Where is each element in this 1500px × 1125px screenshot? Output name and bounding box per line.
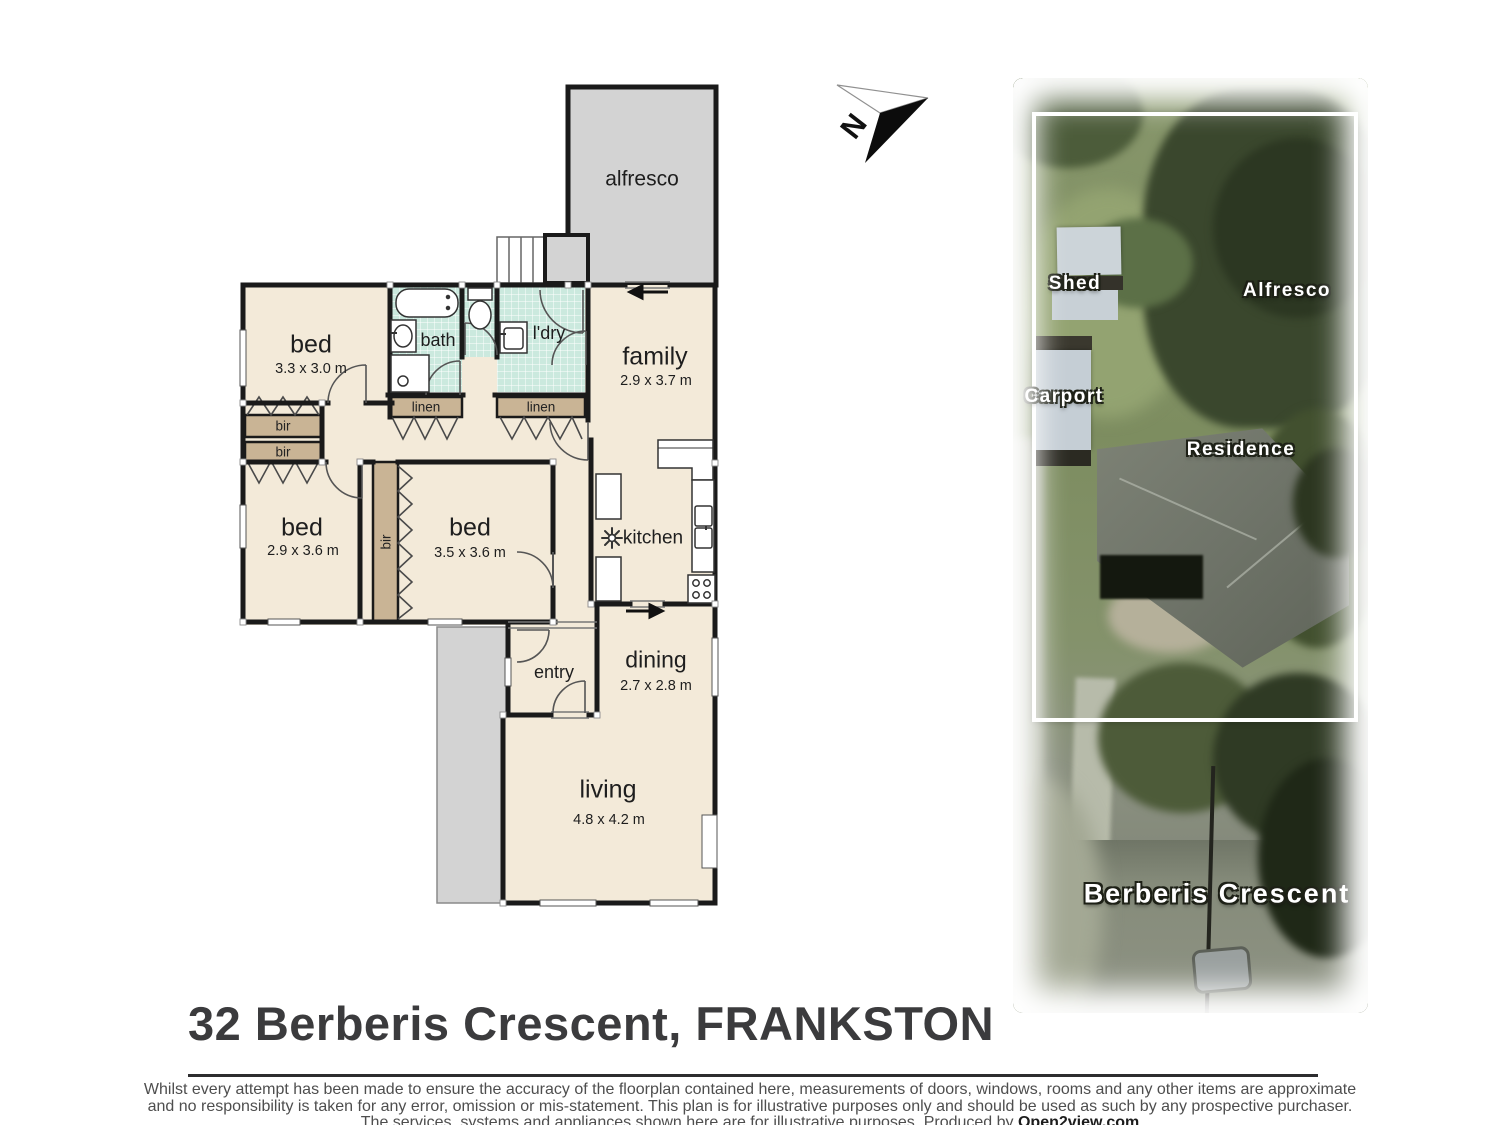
stove (688, 575, 715, 603)
room-label-bath: bath (420, 331, 455, 349)
toilet-bowl (469, 301, 491, 329)
room-label-bed2: bed (281, 516, 323, 541)
producer-brand: Open2view.com (1018, 1114, 1139, 1125)
disclaimer-line3-text: The services, systems and appliances sho… (361, 1114, 1018, 1125)
disclaimer: Whilst every attempt has been made to en… (120, 1082, 1380, 1125)
parked-car (1191, 946, 1253, 995)
closet-label-linen2: linen (527, 400, 556, 414)
room-label-family: family (622, 345, 687, 370)
room-dim-bed3: 3.5 x 3.6 m (434, 546, 506, 561)
room-label-dining: dining (625, 649, 686, 672)
side-path (437, 627, 508, 903)
title-underline (188, 1074, 1318, 1077)
aerial-label-carport: Carport (1024, 386, 1103, 408)
aerial-label-shed: Shed (1049, 273, 1101, 295)
room-dim-bed1: 3.3 x 3.0 m (275, 362, 347, 377)
page: N (0, 0, 1500, 1125)
north-arrow: N (810, 70, 950, 180)
room-label-ldry: l'dry (533, 324, 565, 342)
room-label-living: living (580, 778, 637, 803)
room-dim-living: 4.8 x 4.2 m (573, 813, 645, 828)
closet-label-bir2: bir (275, 445, 290, 459)
room-label-bed3: bed (449, 516, 491, 541)
steps (497, 235, 588, 283)
fan-icon (602, 528, 622, 548)
room-label-alfresco: alfresco (605, 169, 679, 190)
page-title: 32 Berberis Crescent, FRANKSTON (188, 996, 994, 1051)
floorplan-svg (160, 60, 760, 930)
closet-label-bir1: bir (275, 419, 290, 433)
aerial-photo: Shed Alfresco Carport Residence Berberis… (1013, 78, 1368, 1013)
north-arrow-n: N (834, 108, 873, 145)
room-label-kitchen: kitchen (623, 529, 683, 548)
toilet-tank (468, 288, 492, 300)
room-dim-dining: 2.7 x 2.8 m (620, 679, 692, 694)
property-boundary (1032, 112, 1358, 722)
disclaimer-line: and no responsibility is taken for any e… (120, 1099, 1380, 1116)
aerial-label-residence: Residence (1187, 439, 1296, 461)
closet-label-bir3: bir (379, 534, 393, 549)
kitchen-sink (695, 506, 712, 526)
fridge (596, 474, 621, 519)
disclaimer-line: The services, systems and appliances sho… (120, 1115, 1380, 1125)
disclaimer-line: Whilst every attempt has been made to en… (120, 1082, 1380, 1099)
room-label-bed1: bed (290, 333, 332, 358)
pantry (596, 557, 621, 601)
shower (391, 355, 429, 392)
room-dim-family: 2.9 x 3.7 m (620, 374, 692, 389)
aerial-label-street: Berberis Crescent (1084, 879, 1351, 910)
closet-label-linen1: linen (412, 400, 441, 414)
aerial-label-alfresco: Alfresco (1243, 280, 1331, 302)
room-label-entry: entry (534, 663, 574, 681)
bathtub (396, 289, 458, 317)
room-dim-bed2: 2.9 x 3.6 m (267, 544, 339, 559)
